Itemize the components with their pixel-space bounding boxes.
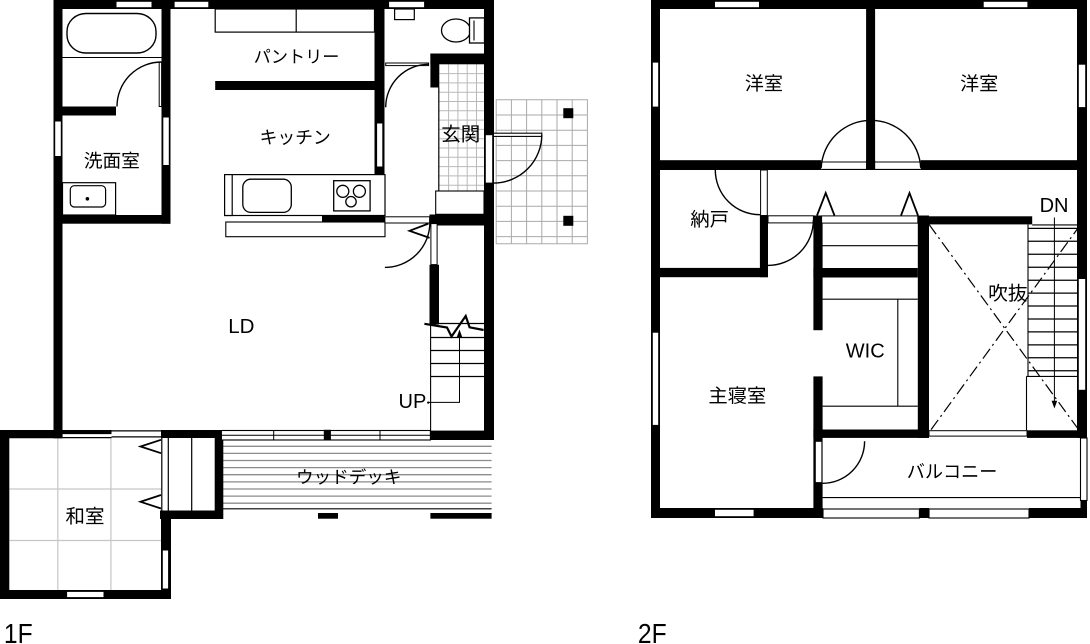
svg-text:DN: DN: [1040, 195, 1069, 217]
svg-text:2F: 2F: [638, 618, 667, 644]
svg-text:WIC: WIC: [846, 340, 885, 362]
svg-text:UP: UP: [399, 391, 427, 413]
svg-text:LD: LD: [228, 315, 254, 338]
svg-text:1F: 1F: [4, 618, 33, 644]
